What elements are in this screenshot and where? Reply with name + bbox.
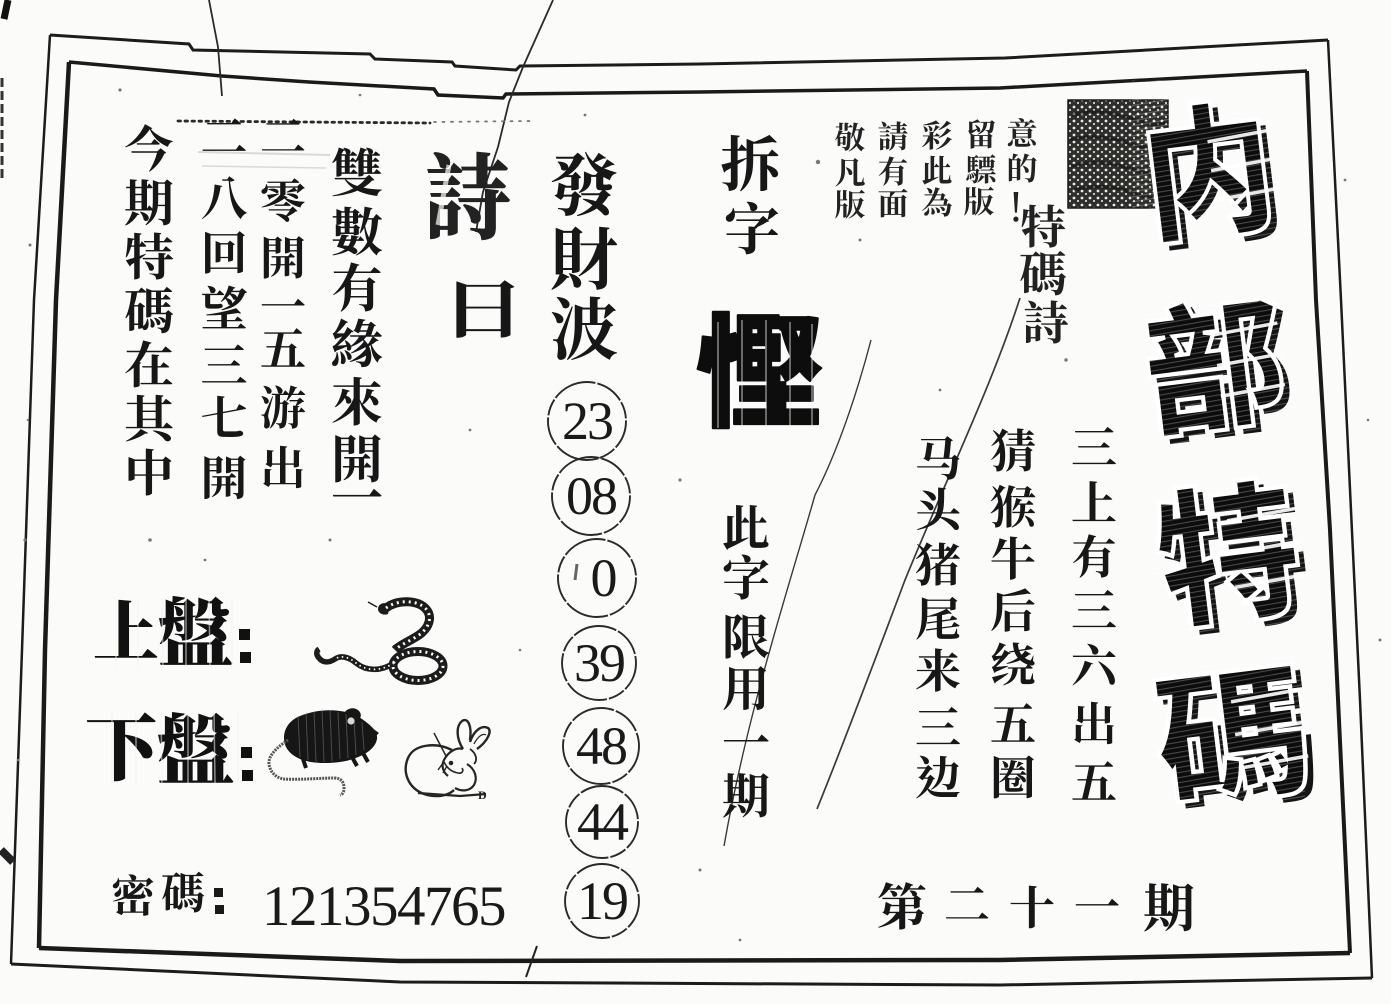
svg-text:121354765: 121354765 [262, 875, 505, 938]
svg-text:D: D [478, 788, 487, 802]
svg-text:!: ! [1009, 182, 1024, 231]
svg-text:48: 48 [576, 716, 626, 776]
svg-text:39: 39 [574, 633, 624, 693]
svg-text:0: 0 [591, 548, 618, 608]
svg-text:23: 23 [562, 391, 612, 451]
svg-text:19: 19 [577, 871, 627, 931]
svg-text:44: 44 [577, 792, 629, 852]
svg-text:08: 08 [566, 466, 616, 526]
